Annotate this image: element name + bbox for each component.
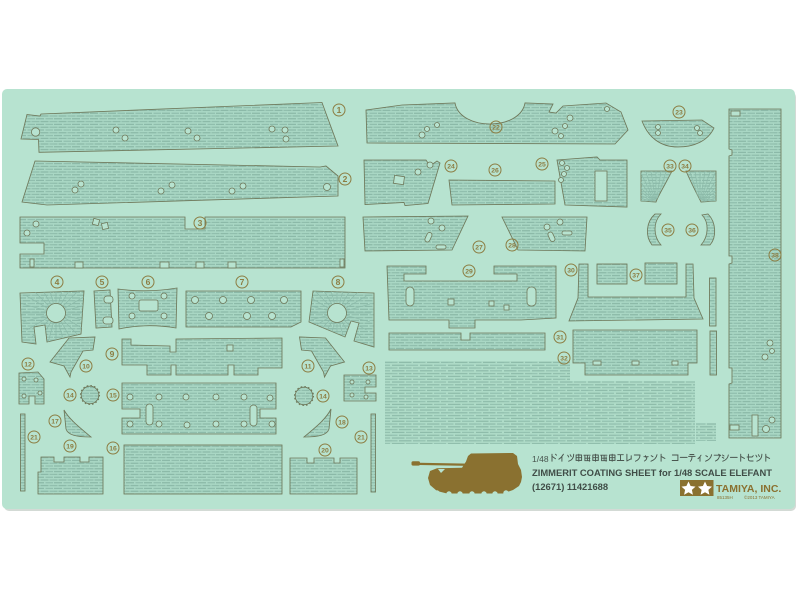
svg-text:6: 6 bbox=[146, 277, 151, 287]
svg-text:5: 5 bbox=[100, 277, 105, 287]
svg-text:23: 23 bbox=[675, 110, 683, 117]
svg-text:7: 7 bbox=[240, 277, 245, 287]
svg-text:35: 35 bbox=[664, 228, 672, 235]
svg-text:21: 21 bbox=[30, 435, 38, 442]
svg-text:29: 29 bbox=[465, 269, 473, 276]
svg-text:19: 19 bbox=[66, 444, 74, 451]
svg-text:10: 10 bbox=[82, 364, 90, 371]
svg-text:18: 18 bbox=[338, 420, 346, 427]
svg-text:36: 36 bbox=[688, 228, 696, 235]
svg-text:11: 11 bbox=[304, 364, 311, 371]
svg-text:20: 20 bbox=[321, 448, 329, 455]
svg-text:(12671) 11421688: (12671) 11421688 bbox=[532, 481, 608, 492]
svg-text:1/48: 1/48 bbox=[532, 454, 549, 464]
svg-text:15: 15 bbox=[109, 393, 117, 400]
svg-text:24: 24 bbox=[447, 164, 455, 171]
svg-text:26: 26 bbox=[491, 168, 499, 175]
svg-text:8: 8 bbox=[336, 277, 341, 287]
svg-text:22: 22 bbox=[492, 125, 500, 132]
svg-text:25: 25 bbox=[538, 162, 546, 169]
svg-text:13: 13 bbox=[365, 366, 373, 373]
svg-text:34: 34 bbox=[681, 164, 689, 171]
svg-text:9: 9 bbox=[110, 349, 115, 359]
svg-text:14: 14 bbox=[319, 394, 327, 401]
svg-text:12: 12 bbox=[24, 362, 32, 369]
svg-text:4: 4 bbox=[55, 277, 60, 287]
svg-text:85135H: 85135H bbox=[717, 495, 733, 500]
svg-text:16: 16 bbox=[109, 446, 117, 453]
svg-text:21: 21 bbox=[357, 435, 365, 442]
svg-text:TAMIYA, INC.: TAMIYA, INC. bbox=[716, 483, 781, 495]
svg-text:14: 14 bbox=[66, 393, 74, 400]
svg-text:27: 27 bbox=[475, 245, 483, 252]
svg-text:38: 38 bbox=[771, 253, 779, 260]
svg-text:1: 1 bbox=[337, 105, 342, 115]
svg-text:17: 17 bbox=[51, 419, 59, 426]
svg-text:3: 3 bbox=[198, 218, 203, 228]
svg-text:32: 32 bbox=[560, 356, 568, 363]
svg-text:ZIMMERIT COATING SHEET for 1/4: ZIMMERIT COATING SHEET for 1/48 SCALE EL… bbox=[532, 467, 772, 478]
svg-text:33: 33 bbox=[666, 164, 674, 171]
svg-text:©2013 TAMIYA: ©2013 TAMIYA bbox=[744, 494, 775, 500]
svg-text:31: 31 bbox=[556, 335, 564, 342]
svg-text:28: 28 bbox=[508, 243, 516, 250]
svg-text:30: 30 bbox=[567, 268, 575, 275]
svg-text:2: 2 bbox=[343, 174, 348, 184]
svg-text:37: 37 bbox=[632, 273, 640, 280]
